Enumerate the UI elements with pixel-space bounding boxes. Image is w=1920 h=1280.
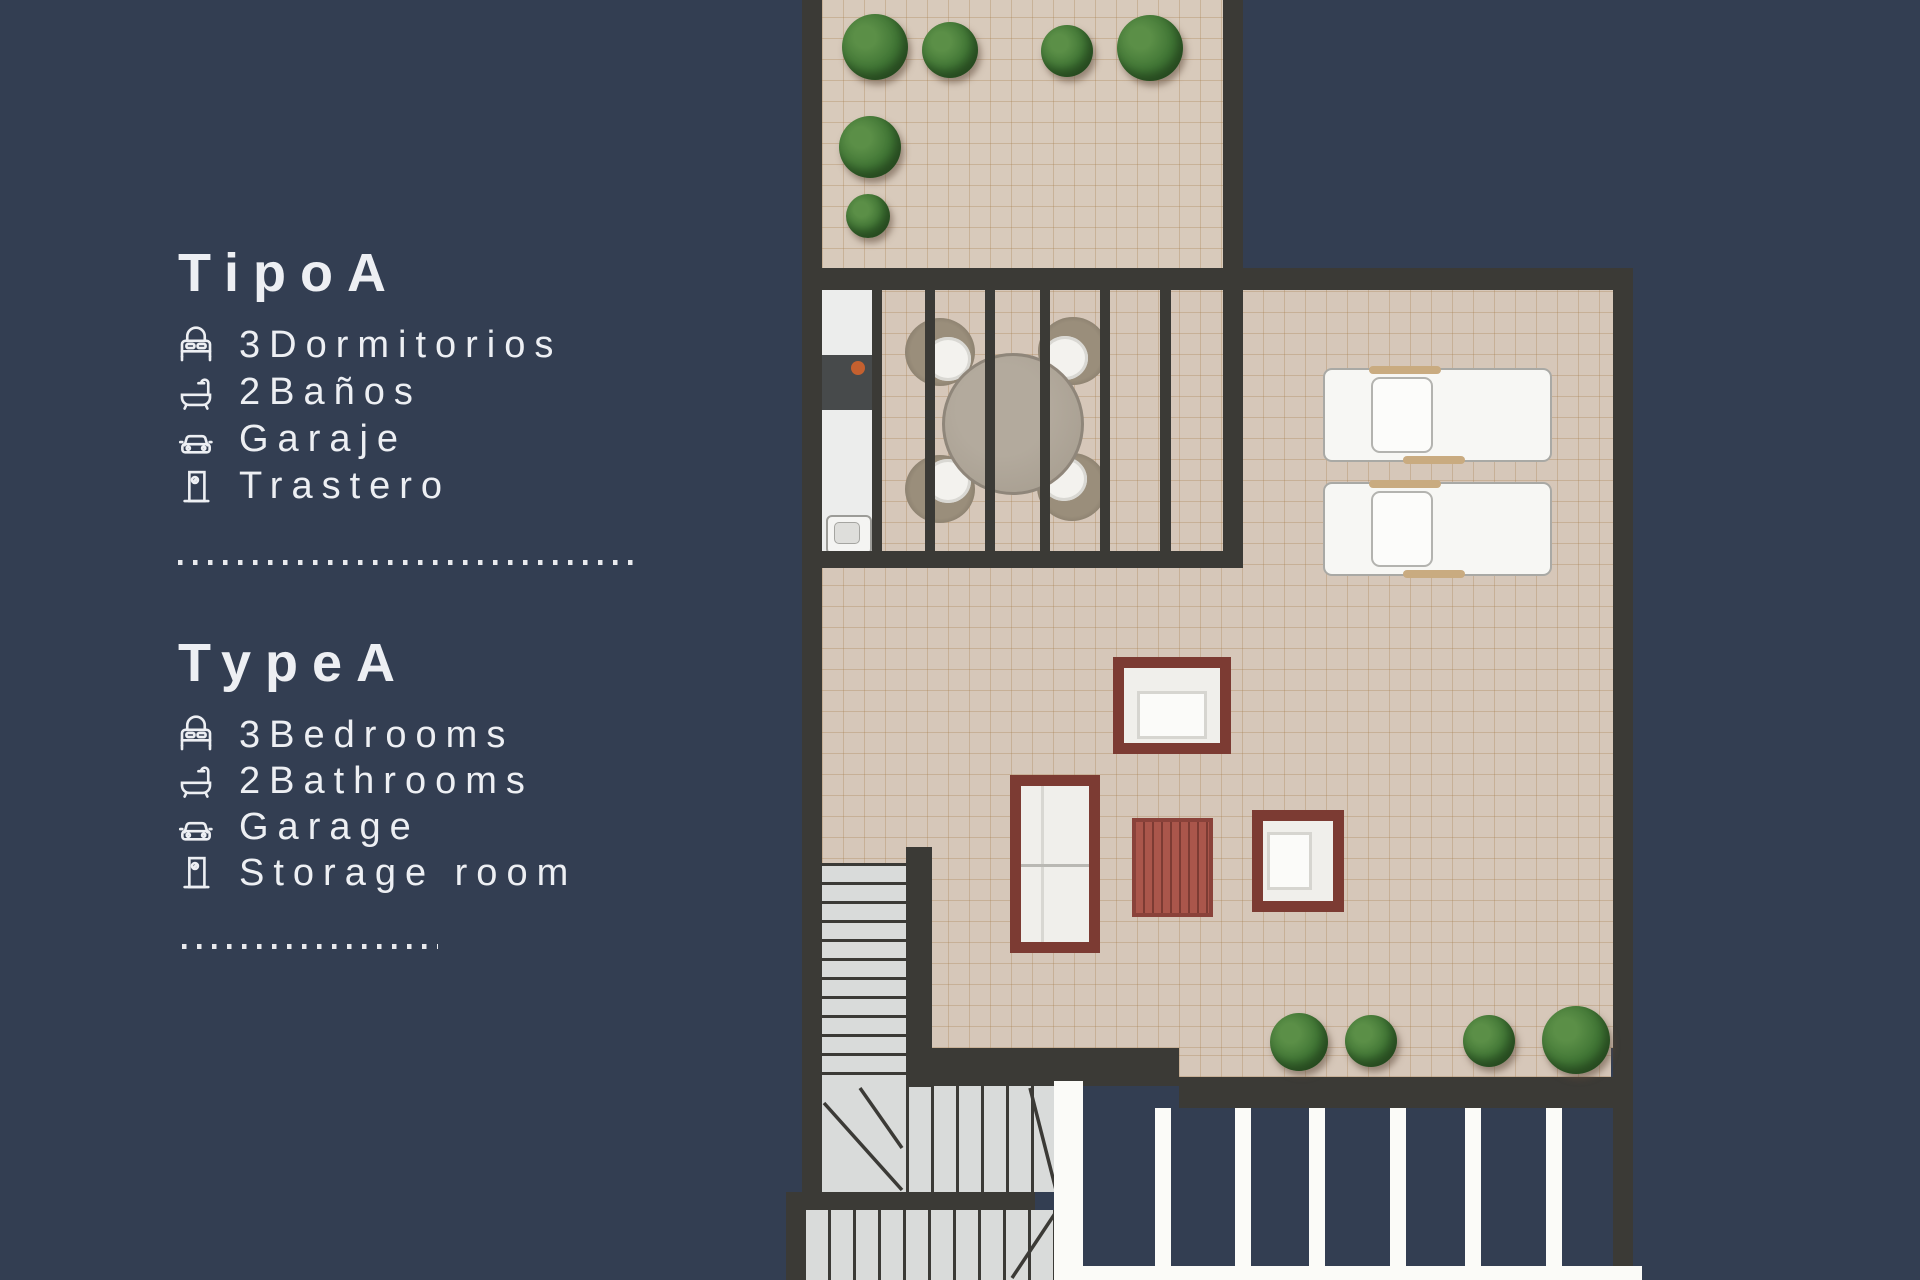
bush <box>1463 1015 1515 1067</box>
bush <box>839 116 901 178</box>
railing-corner-post <box>1054 1081 1083 1280</box>
railing-post <box>1390 1108 1406 1266</box>
bush <box>1041 25 1093 77</box>
railing-post <box>1309 1108 1325 1266</box>
bush <box>846 194 890 238</box>
bush <box>842 14 908 80</box>
railing-post <box>1465 1108 1481 1266</box>
page: TipoA 3Dormitorios 2Baños Garaje Traster… <box>0 0 1920 1280</box>
stair-winder-lines <box>0 0 1920 1280</box>
railing-bottom-rail <box>1054 1266 1642 1280</box>
floorplan <box>0 0 1920 1280</box>
railing-post <box>1546 1108 1562 1266</box>
railing-post <box>1235 1108 1251 1266</box>
bush <box>1345 1015 1397 1067</box>
bush <box>1117 15 1183 81</box>
bush <box>922 22 978 78</box>
bush <box>1270 1013 1328 1071</box>
railing-post <box>1155 1108 1171 1266</box>
bush <box>1542 1006 1610 1074</box>
